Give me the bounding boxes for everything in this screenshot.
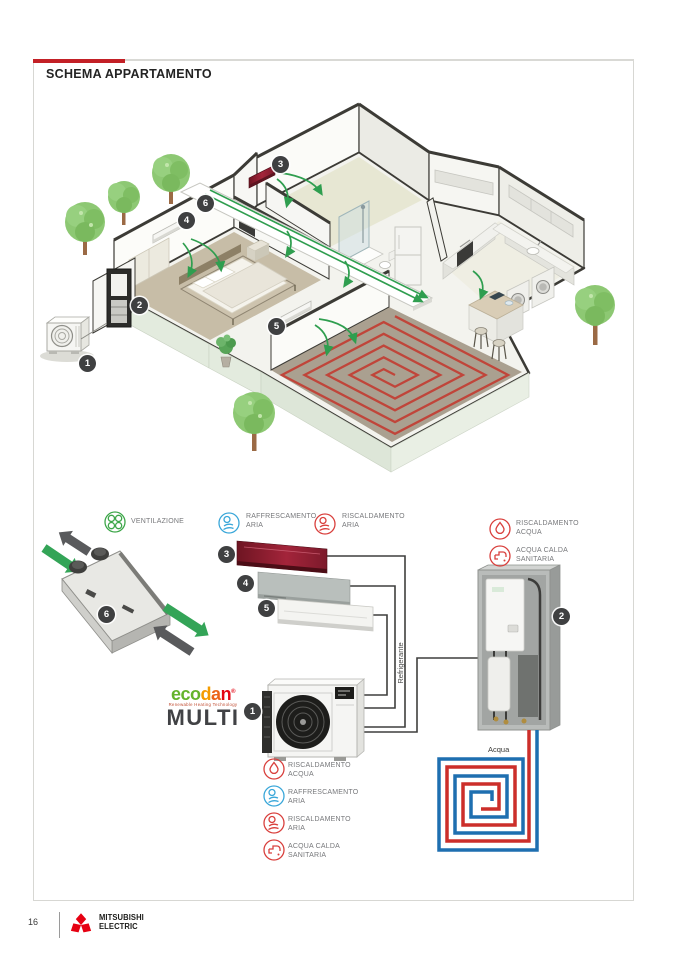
badge-5: 5 [258,600,275,617]
mitsubishi-electric-wordmark: MITSUBISHI ELECTRIC [99,913,144,931]
legend-line: RISCALDAMENTO [288,761,351,770]
hydrobox-closet [93,258,135,333]
hydrobox-unit [478,565,560,730]
raffrescamento-aria-icon [219,513,239,533]
tree [233,392,275,451]
ventilation-unit [39,525,214,660]
ecodan-d: d [201,684,212,704]
indoor-unit-3 [237,541,327,573]
legend-line: ACQUA CALDA [516,546,568,555]
badge-3: 3 [272,156,289,173]
legend-line: ARIA [288,824,351,833]
legend-raffrescamento-aria: RAFFRESCAMENTO ARIA [288,788,358,806]
legend-riscaldamento-aria: RISCALDAMENTO ARIA [342,512,405,530]
refrigerante-label: Refrigerante [396,642,405,683]
legend-acqua-calda-sanitaria: ACQUA CALDA SANITARIA [516,546,568,564]
tree [575,285,615,345]
legend-raffrescamento-aria: RAFFRESCAMENTO ARIA [246,512,316,530]
legend-line: ARIA [342,521,405,530]
legend-line: ACQUA [288,770,351,779]
legend-line: SANITARIA [516,555,568,564]
registered-mark: ® [231,689,235,695]
legend-line: RISCALDAMENTO [516,519,579,528]
legend-acqua-calda-sanitaria: ACQUA CALDA SANITARIA [288,842,340,860]
legend-line: RAFFRESCAMENTO [246,512,316,521]
tree [65,202,105,255]
tree [152,154,190,204]
badge-1: 1 [244,703,261,720]
legend-line: RISCALDAMENTO [288,815,351,824]
badge-6: 6 [98,606,115,623]
ventilazione-icon [105,512,125,532]
tree [108,181,140,225]
riscaldamento-acqua-icon [490,519,510,539]
ecodan-a: a [211,684,221,704]
ecodan-n: n [221,684,232,704]
raffrescamento-aria-icon [264,786,284,806]
footer-divider [59,912,60,938]
apartment-illustration [33,95,631,480]
legend-line: RAFFRESCAMENTO [288,788,358,797]
badge-4: 4 [178,212,195,229]
mitsubishi-diamonds-icon [66,910,98,938]
badge-3: 3 [218,546,235,563]
accent-red-bar [33,59,125,63]
brand-line: ELECTRIC [99,922,144,931]
legend-line: VENTILAZIONE [131,517,184,526]
brochure-page: SCHEMA APPARTAMENTO [0,0,678,959]
riscaldamento-aria-icon [264,813,284,833]
legend-line: SANITARIA [288,851,340,860]
badge-4: 4 [237,575,254,592]
product-name: MULTI [154,705,252,731]
legend-line: ACQUA CALDA [288,842,340,851]
acqua-calda-sanitaria-icon [264,840,284,860]
badge-2: 2 [131,297,148,314]
brand-line: MITSUBISHI [99,913,144,922]
outdoor-unit-diagram [262,679,364,761]
acqua-calda-sanitaria-icon [490,546,510,566]
page-title: SCHEMA APPARTAMENTO [46,67,212,81]
badge-1: 1 [79,355,96,372]
badge-6: 6 [197,195,214,212]
riscaldamento-aria-icon [315,514,335,534]
indoor-unit-5 [278,599,373,631]
legend-ventilazione: VENTILAZIONE [131,517,184,526]
legend-line: ARIA [288,797,358,806]
badge-2: 2 [553,608,570,625]
legend-riscaldamento-acqua: RISCALDAMENTO ACQUA [516,519,579,537]
legend-riscaldamento-aria: RISCALDAMENTO ARIA [288,815,351,833]
legend-riscaldamento-acqua: RISCALDAMENTO ACQUA [288,761,351,779]
riscaldamento-acqua-icon [264,759,284,779]
acqua-label: Acqua [488,745,510,754]
legend-line: ACQUA [516,528,579,537]
ecodan-eco: eco [171,684,201,704]
page-number: 16 [28,917,38,927]
legend-line: RISCALDAMENTO [342,512,405,521]
badge-5: 5 [268,318,285,335]
legend-line: ARIA [246,521,316,530]
